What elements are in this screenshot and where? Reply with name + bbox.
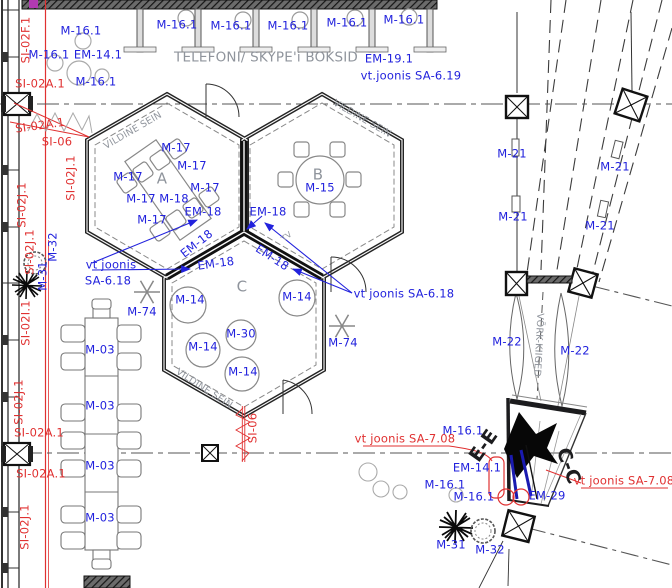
fire-rating-line-red [46, 0, 49, 588]
floorplan-viewport: M-16.1M-16.1M-16.1M-16.1M-16.1M-16.1M-16… [0, 0, 672, 588]
insulation-zigzag-gray [28, 113, 92, 133]
left-wall [1, 0, 19, 588]
room-a-furniture [116, 138, 220, 242]
leader-arrows-blue [92, 216, 352, 293]
plant-wreath-m32 [24, 252, 46, 274]
column [506, 96, 528, 118]
wall-marker-magenta [29, 0, 38, 8]
column [615, 89, 648, 122]
booth-stools [178, 9, 417, 28]
room-b-furniture [278, 142, 361, 217]
top-wall [22, 0, 437, 9]
floorplan-canvas [0, 0, 672, 588]
stage-footing-lines [479, 541, 509, 588]
beam-hatched [527, 276, 572, 283]
column [502, 510, 534, 542]
entry-stools [47, 33, 109, 85]
stage-structure [359, 395, 587, 588]
fixture-circles [359, 463, 463, 502]
column [202, 445, 218, 461]
long-table [61, 299, 141, 569]
room-c-poufs [170, 280, 315, 391]
column [506, 272, 527, 295]
plant-stand-stars-m74 [134, 281, 355, 338]
column [568, 268, 597, 297]
bottom-wall-segment [84, 576, 130, 588]
phone-booths [124, 9, 446, 52]
round-table [296, 156, 344, 204]
plant-scribble-m31 [12, 271, 42, 299]
plant-scribble-m31-2 [439, 510, 473, 543]
net-swings-m22 [510, 292, 579, 411]
column [1, 443, 33, 465]
ceiling-diagonals [527, 0, 672, 282]
plants [12, 252, 495, 543]
